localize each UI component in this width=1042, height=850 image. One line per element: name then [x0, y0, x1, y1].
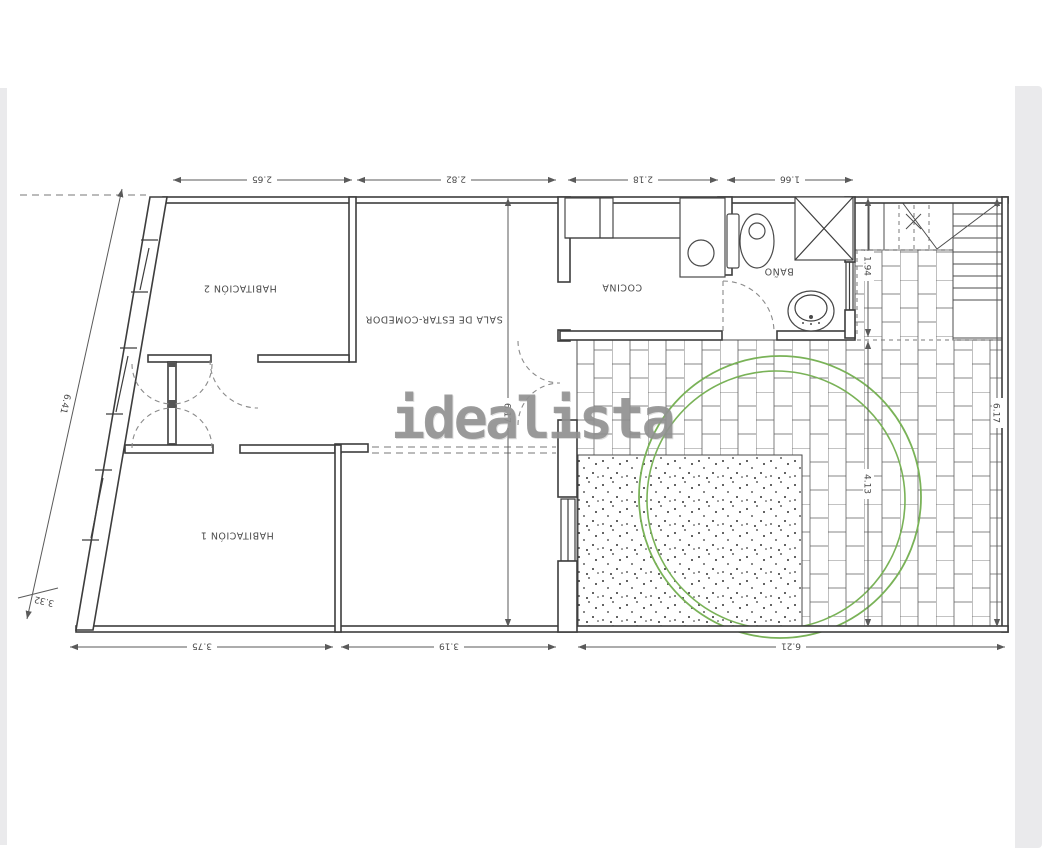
dim-top-4: 1.66 — [780, 174, 800, 184]
habitacion2-door-arc — [210, 360, 258, 408]
room-label-habitacion-1: HABITACIÓN 1 — [200, 530, 273, 542]
terrace-door-arc-1 — [518, 341, 560, 383]
kitchen-sink — [688, 240, 714, 266]
dim-top-2: 2.82 — [446, 174, 466, 184]
hall-door-arc-3 — [132, 408, 172, 448]
dim-bottom-3: 6.21 — [781, 641, 801, 651]
toilet-flush — [749, 223, 765, 239]
hall-door-arc-2 — [172, 364, 212, 404]
dim-stairs-vertical: 1.94 — [862, 256, 872, 276]
kitchen-cabinet — [565, 198, 613, 238]
toilet-tank — [727, 214, 739, 268]
room-label-bano: BAÑO — [764, 266, 794, 277]
bano-door-arc — [723, 281, 774, 332]
room-label-habitacion-2: HABITACIÓN 2 — [203, 283, 276, 295]
floor-plan-page: 2.65 2.82 2.18 1.66 3.75 3.19 6.21 6.17 … — [0, 0, 1042, 850]
dim-left-bottom: 3.32 — [33, 593, 55, 607]
room-label-cocina: COCINA — [602, 282, 642, 293]
room-label-sala: SALA DE ESTAR-COMEDOR — [365, 314, 503, 325]
idealista-watermark: idealista — [391, 389, 711, 451]
dim-bottom-1: 3.75 — [192, 641, 212, 651]
bathroom-fixtures — [727, 197, 853, 331]
dim-top-1: 2.65 — [252, 174, 272, 184]
dim-top-3: 2.18 — [633, 174, 653, 184]
dim-bottom-2: 3.19 — [439, 641, 459, 651]
toilet-bowl — [740, 214, 774, 268]
dim-terrace-vertical: 4.13 — [862, 474, 872, 494]
photo-edge-left — [0, 88, 7, 845]
photo-edge-right — [1015, 86, 1042, 848]
sink-drain — [809, 315, 813, 319]
kitchen-fixtures — [565, 198, 725, 277]
dim-right-vertical: 6.17 — [991, 403, 1001, 423]
hall-door-arc-4 — [172, 408, 212, 448]
patio-dotted-area — [578, 455, 802, 628]
